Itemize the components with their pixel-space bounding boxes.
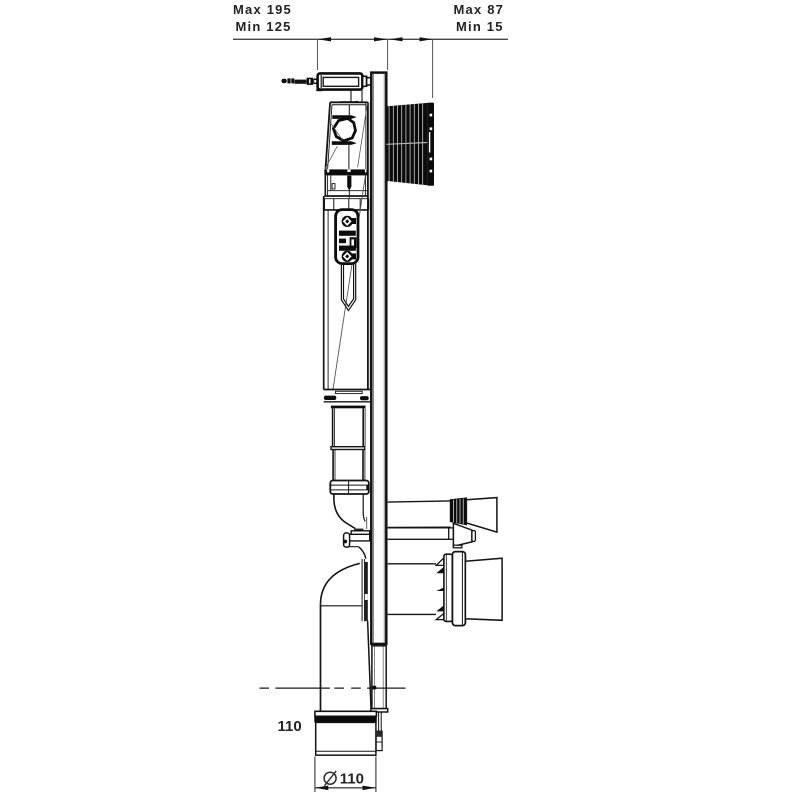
svg-text:110: 110 bbox=[340, 770, 364, 787]
svg-text:110: 110 bbox=[278, 718, 302, 735]
svg-text:Min 15: Min 15 bbox=[456, 19, 504, 34]
svg-text:Max 195: Max 195 bbox=[233, 2, 292, 17]
svg-text:Max 87: Max 87 bbox=[454, 2, 505, 17]
svg-text:Min 125: Min 125 bbox=[236, 19, 292, 34]
